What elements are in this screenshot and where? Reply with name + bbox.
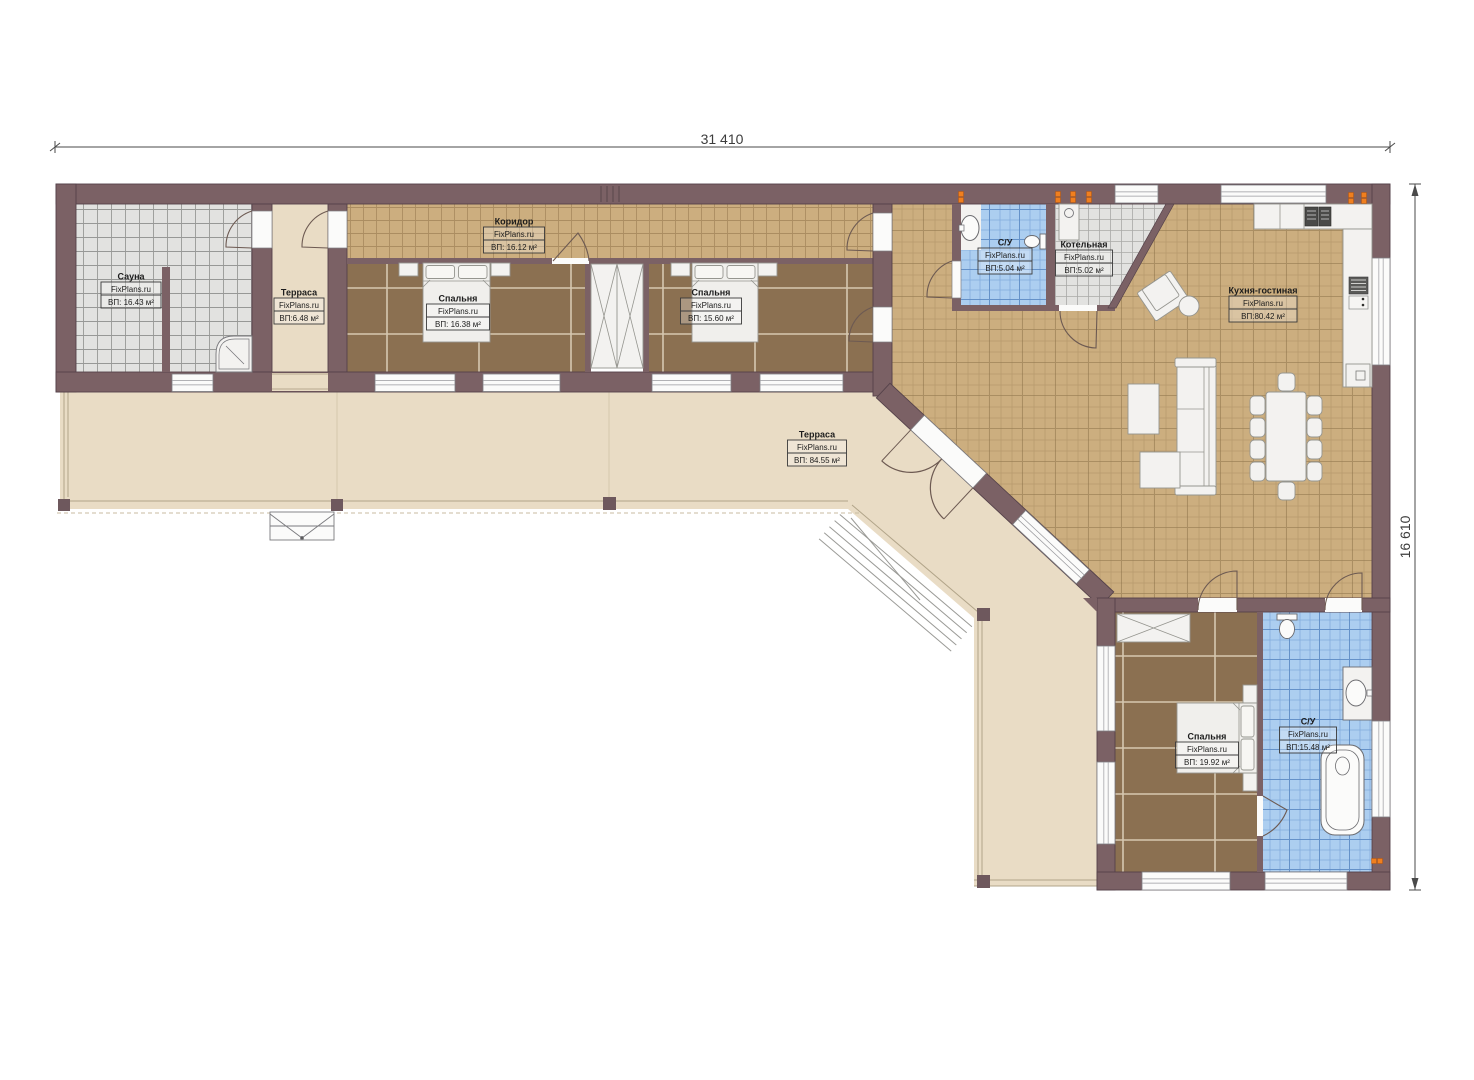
- svg-text:С/У: С/У: [998, 238, 1013, 248]
- svg-text:ВП: 15.60 м²: ВП: 15.60 м²: [688, 314, 734, 323]
- svg-text:FixPlans.ru: FixPlans.ru: [1187, 745, 1227, 754]
- svg-text:Спальня: Спальня: [1188, 732, 1227, 742]
- svg-text:ВП: 84.55 м²: ВП: 84.55 м²: [794, 456, 840, 465]
- svg-text:FixPlans.ru: FixPlans.ru: [1288, 730, 1328, 739]
- svg-text:FixPlans.ru: FixPlans.ru: [691, 301, 731, 310]
- svg-text:Кухня-гостиная: Кухня-гостиная: [1229, 286, 1298, 296]
- svg-text:FixPlans.ru: FixPlans.ru: [494, 230, 534, 239]
- svg-text:Терраса: Терраса: [281, 288, 318, 298]
- svg-text:FixPlans.ru: FixPlans.ru: [279, 301, 319, 310]
- svg-text:ВП:80.42 м²: ВП:80.42 м²: [1241, 312, 1285, 321]
- svg-text:31 410: 31 410: [701, 131, 744, 147]
- svg-text:FixPlans.ru: FixPlans.ru: [797, 443, 837, 452]
- svg-text:Коридор: Коридор: [495, 217, 534, 227]
- svg-text:ВП: 16.43 м²: ВП: 16.43 м²: [108, 298, 154, 307]
- svg-text:ВП:15.48 м²: ВП:15.48 м²: [1286, 743, 1330, 752]
- svg-text:ВП: 16.12 м²: ВП: 16.12 м²: [491, 243, 537, 252]
- svg-text:FixPlans.ru: FixPlans.ru: [111, 285, 151, 294]
- svg-text:ВП:5.04 м²: ВП:5.04 м²: [985, 264, 1025, 273]
- svg-text:Терраса: Терраса: [799, 430, 836, 440]
- svg-text:FixPlans.ru: FixPlans.ru: [1243, 299, 1283, 308]
- svg-text:ВП:6.48 м²: ВП:6.48 м²: [279, 314, 319, 323]
- svg-text:ВП: 16.38 м²: ВП: 16.38 м²: [435, 320, 481, 329]
- svg-text:Спальня: Спальня: [692, 288, 731, 298]
- svg-text:FixPlans.ru: FixPlans.ru: [438, 307, 478, 316]
- svg-text:ВП:5.02 м²: ВП:5.02 м²: [1064, 266, 1104, 275]
- svg-text:ВП: 19.92 м²: ВП: 19.92 м²: [1184, 758, 1230, 767]
- svg-text:16 610: 16 610: [1397, 515, 1413, 558]
- svg-text:Сауна: Сауна: [117, 272, 145, 282]
- svg-text:Спальня: Спальня: [439, 294, 478, 304]
- svg-text:FixPlans.ru: FixPlans.ru: [1064, 253, 1104, 262]
- svg-text:С/У: С/У: [1301, 717, 1316, 727]
- svg-text:Котельная: Котельная: [1060, 240, 1107, 250]
- svg-text:FixPlans.ru: FixPlans.ru: [985, 251, 1025, 260]
